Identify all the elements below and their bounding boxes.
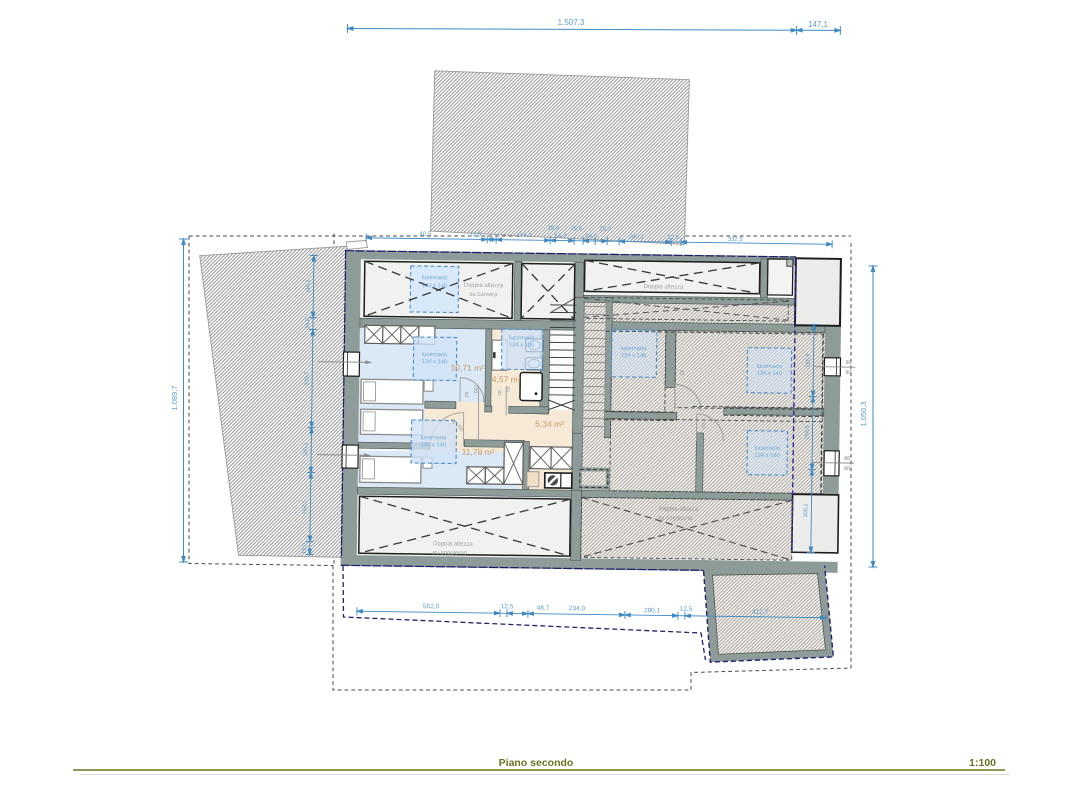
svg-text:1.507,3: 1.507,3	[558, 18, 585, 27]
svg-text:80: 80	[700, 423, 706, 429]
svg-text:253,2: 253,2	[302, 501, 308, 515]
svg-text:285,9: 285,9	[805, 354, 811, 368]
svg-text:1.089,7: 1.089,7	[170, 385, 179, 410]
svg-text:11,78 m²: 11,78 m²	[462, 447, 495, 457]
svg-text:178,2: 178,2	[517, 233, 533, 239]
svg-text:552,0: 552,0	[423, 603, 440, 610]
svg-text:80: 80	[463, 392, 469, 398]
svg-text:Doppia altezza: Doppia altezza	[433, 541, 473, 548]
svg-text:lucernario: lucernario	[621, 346, 647, 352]
svg-text:80: 80	[504, 386, 510, 392]
svg-text:80: 80	[845, 360, 851, 366]
svg-text:84,2: 84,2	[554, 233, 566, 239]
svg-text:48,7: 48,7	[537, 605, 550, 612]
svg-text:10,71 m²: 10,71 m²	[451, 362, 485, 372]
svg-text:238,7: 238,7	[304, 372, 310, 386]
svg-text:147,1: 147,1	[808, 20, 829, 29]
svg-text:Doppia altezza: Doppia altezza	[464, 283, 504, 290]
svg-text:148,2: 148,2	[305, 280, 311, 294]
svg-text:134 x 140: 134 x 140	[757, 371, 783, 377]
svg-text:100,1: 100,1	[303, 443, 309, 457]
svg-text:lucernario: lucernario	[754, 446, 780, 452]
svg-text:18,0: 18,0	[302, 543, 308, 554]
svg-text:80: 80	[678, 370, 684, 376]
svg-text:300,1: 300,1	[803, 504, 809, 518]
svg-text:84,5: 84,5	[585, 234, 597, 240]
svg-text:80: 80	[844, 466, 850, 472]
svg-text:28,0: 28,0	[305, 318, 311, 329]
svg-text:134 x 140: 134 x 140	[754, 453, 780, 459]
svg-text:lucernario: lucernario	[421, 435, 447, 441]
svg-text:12,5: 12,5	[469, 232, 481, 238]
svg-text:1.050,3: 1.050,3	[859, 401, 868, 426]
svg-text:25,6: 25,6	[570, 226, 582, 232]
svg-text:234,0: 234,0	[569, 605, 586, 612]
svg-text:1:100: 1:100	[969, 757, 996, 769]
svg-text:412,7: 412,7	[752, 609, 769, 616]
svg-text:80: 80	[845, 370, 851, 376]
svg-text:12,5: 12,5	[667, 235, 679, 241]
svg-text:134 x 140: 134 x 140	[509, 342, 535, 348]
svg-text:su camera: su camera	[469, 292, 498, 298]
svg-text:134 x 140: 134 x 140	[621, 353, 647, 359]
svg-text:su soggiorno: su soggiorno	[658, 515, 693, 521]
svg-text:lucernario: lucernario	[422, 275, 448, 281]
svg-text:134 x 140: 134 x 140	[421, 442, 447, 448]
svg-text:290,1: 290,1	[644, 607, 661, 614]
svg-text:lucernario: lucernario	[422, 352, 448, 358]
svg-text:263,8: 263,8	[804, 426, 810, 440]
svg-text:80: 80	[844, 456, 850, 462]
svg-text:280,1: 280,1	[629, 234, 645, 240]
svg-text:332,5: 332,5	[728, 237, 744, 243]
svg-text:4,57 m²: 4,57 m²	[492, 374, 521, 384]
svg-text:200: 200	[472, 385, 478, 394]
svg-text:lucernario: lucernario	[509, 335, 535, 341]
svg-text:lucernario: lucernario	[757, 364, 783, 370]
svg-text:su soggiorno: su soggiorno	[433, 550, 468, 556]
svg-text:Doppia altezza: Doppia altezza	[659, 506, 699, 513]
svg-text:40,5: 40,5	[419, 232, 431, 238]
svg-text:80: 80	[496, 390, 502, 396]
svg-text:20,0: 20,0	[599, 227, 611, 233]
svg-text:134 x 140: 134 x 140	[422, 359, 448, 365]
svg-text:12,5: 12,5	[501, 603, 514, 610]
svg-text:Piano secondo: Piano secondo	[499, 757, 574, 769]
svg-text:19,9: 19,9	[547, 226, 559, 232]
svg-text:Doppia altezza: Doppia altezza	[644, 284, 684, 291]
svg-text:12,5: 12,5	[680, 606, 693, 613]
svg-text:5,34 m²: 5,34 m²	[535, 419, 564, 429]
